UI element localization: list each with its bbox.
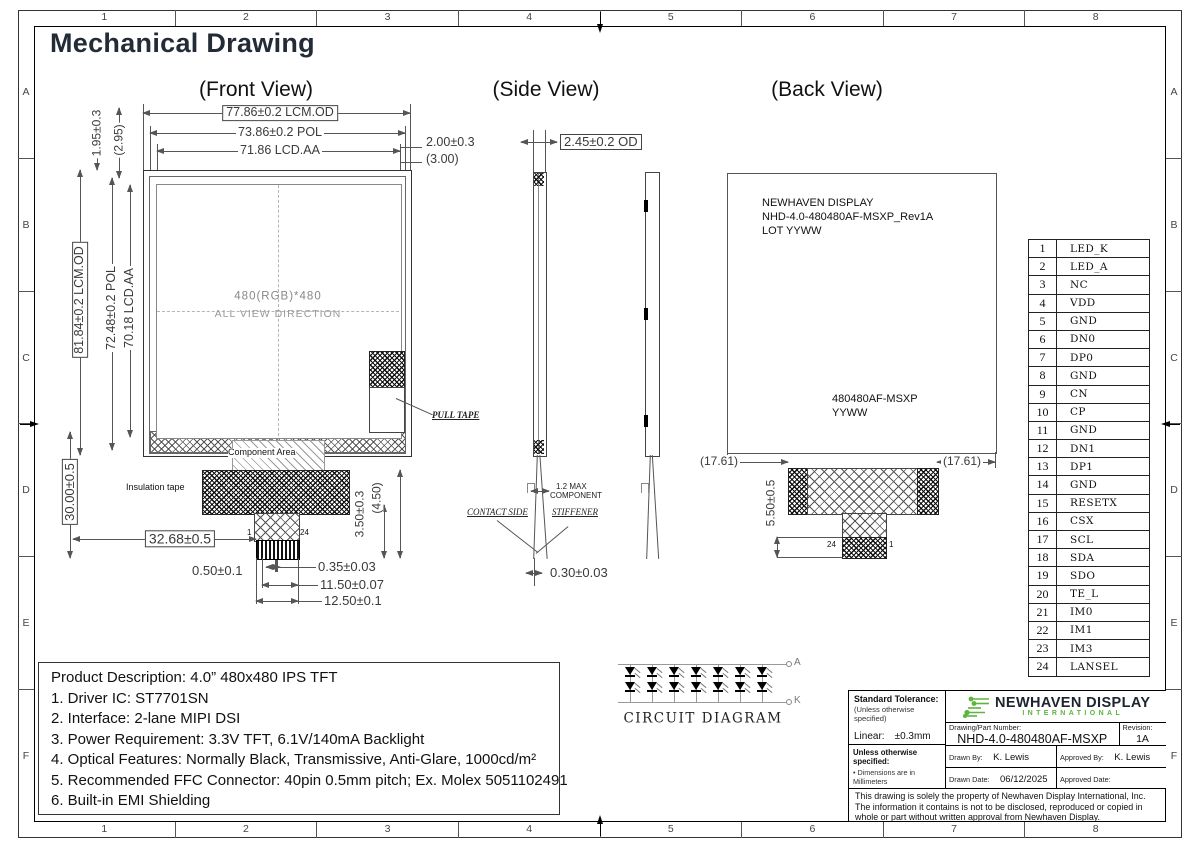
revision-value: 1A <box>1123 733 1163 745</box>
pin-name: LED_K <box>1057 240 1108 257</box>
description-line: Product Description: 4.0” 480x480 IPS TF… <box>51 668 559 689</box>
pin-name: SCL <box>1057 531 1093 548</box>
dim-line-pins-span <box>262 585 298 586</box>
pin-name: IM3 <box>1057 640 1093 657</box>
pin-name: GND <box>1057 313 1097 330</box>
pin-table-row: 16 CSX <box>1029 513 1149 531</box>
grid-row-label: C <box>1166 291 1182 424</box>
description-line: 5. Recommended FFC Connector: 40pin 0.5m… <box>51 771 559 792</box>
anode-terminal <box>786 661 792 667</box>
back-connector <box>842 537 887 559</box>
grid-col-label: 7 <box>883 822 1025 838</box>
pin-connection-table: 1 LED_K 2 LED_A 3 NC 4 VDD 5 GND <box>1028 239 1150 677</box>
page-title: Mechanical Drawing <box>50 28 315 59</box>
dim-line-tail-1 <box>384 505 385 558</box>
back-tape-right <box>917 468 939 515</box>
pin-name: NC <box>1057 276 1088 293</box>
pin-number: 20 <box>1029 586 1057 603</box>
revision-cell: Revision: 1A <box>1120 723 1166 746</box>
dim-label-aa-width: 71.86 LCD.AA <box>238 144 322 158</box>
pin-name: GND <box>1057 476 1097 493</box>
front-view-label: (Front View) <box>199 78 313 102</box>
pin-number: 13 <box>1029 458 1057 475</box>
insulation-tape-label: Insulation tape <box>126 483 185 493</box>
pin-number: 7 <box>1029 349 1057 366</box>
description-line: 1. Driver IC: ST7701SN <box>51 689 559 710</box>
pin-number: 5 <box>1029 313 1057 330</box>
spec-cell: Unless otherwise specified: • Dimensions… <box>849 745 946 789</box>
led-icon <box>691 667 701 679</box>
dim-label-top-margin-1: 1.95±0.3 <box>90 108 103 159</box>
contact-side-label: CONTACT SIDE <box>467 508 528 518</box>
pin-number: 22 <box>1029 622 1057 639</box>
revision-label: Revision: <box>1123 724 1163 732</box>
leader-line <box>400 162 422 163</box>
pin-table-row: 7 DP0 <box>1029 349 1149 367</box>
grid-col-label: 7 <box>883 10 1025 26</box>
pin-name: CN <box>1057 386 1088 403</box>
led-column <box>754 664 776 702</box>
pin-name: SDA <box>1057 549 1094 566</box>
pin-table-row: 13 DP1 <box>1029 458 1149 476</box>
led-column <box>732 664 754 702</box>
center-arrow-bottom <box>597 815 603 824</box>
side-bottom-hatch <box>534 440 544 454</box>
pin-name: RESETX <box>1057 495 1117 512</box>
pin-table-row: 17 SCL <box>1029 531 1149 549</box>
description-line: 4. Optical Features: Normally Black, Tra… <box>51 750 559 771</box>
led-column <box>688 664 710 702</box>
back-tail-weave <box>807 468 919 515</box>
grid-col-label: 6 <box>741 822 883 838</box>
component-area-label: Component Area <box>228 448 296 458</box>
ext-line <box>545 130 546 172</box>
grid-col-label: 8 <box>1024 10 1166 26</box>
back-pin-1-marker: 1 <box>889 541 893 550</box>
cathode-label: K <box>794 695 801 706</box>
dim-label-back-tail: 5.50±0.5 <box>764 478 777 529</box>
component-mark <box>641 483 649 493</box>
pin-number: 16 <box>1029 513 1057 530</box>
approved-by-label: Approved By: <box>1060 753 1104 762</box>
drawn-date-cell: Drawn Date: 06/12/2025 <box>946 768 1057 790</box>
grid-row-label: A <box>18 26 34 158</box>
side-view-label: (Side View) <box>493 78 600 102</box>
drawn-by-label: Drawn By: <box>949 753 983 762</box>
brand-name: NEWHAVEN DISPLAY <box>995 696 1150 710</box>
pin-table-row: 3 NC <box>1029 276 1149 294</box>
pin-table-row: 24 LANSEL <box>1029 658 1149 675</box>
grid-col-label: 6 <box>741 10 883 26</box>
pull-tape-label: PULL TAPE <box>432 411 479 421</box>
grid-col-label: 2 <box>175 10 317 26</box>
dim-label-tail-1: 3.50±0.3 <box>353 489 366 540</box>
side-profile-inner-line <box>538 173 539 454</box>
tolerance-note: (Unless otherwise specified) <box>854 705 940 723</box>
led-icon <box>735 667 745 679</box>
pin-number: 24 <box>1029 658 1057 675</box>
drawing-sheet: 12345678 12345678 ABCDEF ABCDEF Mechanic… <box>0 0 1200 848</box>
pin-table-row: 4 VDD <box>1029 295 1149 313</box>
back-tail-lower <box>842 513 887 539</box>
center-arrow-top <box>597 24 603 33</box>
led-icon <box>647 682 657 694</box>
title-block: Standard Tolerance: (Unless otherwise sp… <box>848 690 1166 822</box>
grid-row-label: E <box>1166 556 1182 689</box>
side-top-hatch <box>534 173 544 186</box>
pin-table-row: 14 GND <box>1029 476 1149 494</box>
side-tab <box>644 415 648 427</box>
ext-line <box>777 537 842 538</box>
back-marking-line2: NHD-4.0-480480AF-MSXP_Rev1A <box>762 211 933 223</box>
fpc-tail <box>254 513 300 542</box>
back-tape-left <box>788 468 809 515</box>
back-marking-line1: NEWHAVEN DISPLAY <box>762 197 873 209</box>
dim-line-fpc-thickness <box>526 573 542 574</box>
back-marking-line3: LOT YYWW <box>762 225 822 237</box>
pin-name: VDD <box>1057 295 1096 312</box>
approved-by-value: K. Lewis <box>1114 752 1150 763</box>
pin-name: DN0 <box>1057 331 1096 348</box>
dim-label-pol-width: 73.86±0.2 POL <box>236 126 324 140</box>
dim-line-pin-width <box>266 567 280 568</box>
dim-label-fpc-width: 12.50±0.1 <box>324 594 382 608</box>
cathode-terminal <box>786 699 792 705</box>
grid-row-label: B <box>18 158 34 291</box>
stiffener-label: STIFFENER <box>552 508 598 518</box>
led-icon <box>647 667 657 679</box>
pin-number: 19 <box>1029 567 1057 584</box>
pin-number: 23 <box>1029 640 1057 657</box>
led-icon <box>713 682 723 694</box>
pin-number: 11 <box>1029 422 1057 439</box>
ext-line <box>777 557 842 558</box>
brand-subtitle: INTERNATIONAL <box>995 710 1150 718</box>
dim-label-edge-2: (3.00) <box>426 153 459 167</box>
description-line: 2. Interface: 2-lane MIPI DSI <box>51 709 559 730</box>
active-area-view-direction: ALL VIEW DIRECTION <box>215 309 342 321</box>
side-tab <box>644 308 648 320</box>
pin-number: 3 <box>1029 276 1057 293</box>
approved-date-label: Approved Date: <box>1060 775 1111 784</box>
pin-number: 8 <box>1029 367 1057 384</box>
grid-col-label: 5 <box>600 10 742 26</box>
back-pin-24-marker: 24 <box>827 541 836 550</box>
description-line: 3. Power Requirement: 3.3V TFT, 6.1V/140… <box>51 730 559 751</box>
led-icon <box>625 667 635 679</box>
circuit-diagram-label: CIRCUIT DIAGRAM <box>623 712 782 727</box>
center-arrow-right <box>1161 421 1170 427</box>
led-column <box>622 664 644 702</box>
grid-col-label: 5 <box>600 822 742 838</box>
pin-number: 9 <box>1029 386 1057 403</box>
grid-row-label: A <box>1166 26 1182 158</box>
pin-number: 10 <box>1029 404 1057 421</box>
dim-label-pin-width: 0.35±0.03 <box>318 560 376 574</box>
spec-title: Unless otherwise specified: <box>853 748 941 766</box>
pin-table-row: 1 LED_K <box>1029 240 1149 258</box>
pin-number: 6 <box>1029 331 1057 348</box>
side-profile <box>533 172 547 457</box>
drawn-date-label: Drawn Date: <box>949 775 990 784</box>
led-icon <box>757 682 767 694</box>
grid-row-label: B <box>1166 158 1182 291</box>
tolerance-title: Standard Tolerance: <box>854 694 940 704</box>
dim-label-fpc-offset: 32.68±0.5 <box>145 530 215 547</box>
grid-col-label: 2 <box>175 822 317 838</box>
drawn-by-value: K. Lewis <box>993 752 1029 763</box>
pin-name: DN1 <box>1057 440 1096 457</box>
disclaimer-cell: This drawing is solely the property of N… <box>849 789 1165 820</box>
pin-name: IM1 <box>1057 622 1093 639</box>
grid-row-label: E <box>18 556 34 689</box>
component-note-2: COMPONENT <box>550 492 602 501</box>
pin-number: 18 <box>1029 549 1057 566</box>
center-arrow-left <box>30 421 39 427</box>
dim-label-tail-total: 30.00±0.5 <box>62 459 78 525</box>
pin-name: LANSEL <box>1057 658 1118 675</box>
led-icon <box>757 667 767 679</box>
pin-number: 4 <box>1029 295 1057 312</box>
dim-label-edge-1: 2.00±0.3 <box>426 136 475 150</box>
dim-label-lcm-od-height: 81.84±0.2 LCM.OD <box>72 242 88 358</box>
pin-table-row: 23 IM3 <box>1029 640 1149 658</box>
leader-line <box>298 585 318 586</box>
dim-label-top-margin-2: (2.95) <box>112 122 125 157</box>
dim-label-thickness: 2.45±0.2 OD <box>560 134 642 150</box>
dim-line-component-height <box>531 491 549 492</box>
pin-name: GND <box>1057 422 1097 439</box>
pin-name: LED_A <box>1057 258 1108 275</box>
led-column <box>644 664 666 702</box>
dim-line-fpc-width <box>256 601 298 602</box>
pin-table-row: 9 CN <box>1029 386 1149 404</box>
approved-date-cell: Approved Date: 06/12/2025 <box>1057 768 1166 790</box>
dim-label-pol-height: 72.48±0.2 POL <box>105 264 119 352</box>
drawn-by-cell: Drawn By: K. Lewis <box>946 746 1057 768</box>
led-column <box>710 664 732 702</box>
pin-number: 1 <box>1029 240 1057 257</box>
pin-table-row: 8 GND <box>1029 367 1149 385</box>
drawn-date-value: 06/12/2025 <box>1000 774 1048 785</box>
active-area-resolution: 480(RGB)*480 <box>234 291 321 304</box>
dim-label-back-left: (17.61) <box>698 455 740 468</box>
dim-label-aa-height: 70.18 LCD.AA <box>123 266 137 350</box>
back-view-label: (Back View) <box>771 78 883 102</box>
product-description: Product Description: 4.0” 480x480 IPS TF… <box>38 662 560 815</box>
part-number-label: Drawing/Part Number: <box>949 724 1116 732</box>
back-marking2-line1: 480480AF-MSXP <box>832 393 918 405</box>
grid-row-label: D <box>18 423 34 556</box>
grid-col-label: 8 <box>1024 822 1166 838</box>
pull-tape-hatch <box>369 351 405 389</box>
approved-by-cell: Approved By: K. Lewis <box>1057 746 1166 768</box>
led-icon <box>625 682 635 694</box>
back-marking2-line2: YYWW <box>832 407 867 419</box>
dim-label-fpc-thickness: 0.30±0.03 <box>550 566 608 580</box>
anode-label: A <box>794 657 801 668</box>
disclaimer-text: This drawing is solely the property of N… <box>855 791 1159 823</box>
pin-number: 2 <box>1029 258 1057 275</box>
pin-table-row: 5 GND <box>1029 313 1149 331</box>
pin-name: GND <box>1057 367 1097 384</box>
led-icon <box>713 667 723 679</box>
led-icon <box>691 682 701 694</box>
leader-line <box>298 601 322 602</box>
dim-label-lcm-od-width: 77.86±0.2 LCM.OD <box>222 105 338 121</box>
spec-item-units: • Dimensions are in Millimeters <box>853 768 941 786</box>
pin-name: DP1 <box>1057 458 1093 475</box>
leader-line <box>400 147 422 148</box>
dim-line-back-tail <box>777 537 778 557</box>
grid-row-label: D <box>1166 423 1182 556</box>
part-number-value: NHD-4.0-480480AF-MSXP <box>949 732 1116 746</box>
grid-row-label: F <box>1166 689 1182 822</box>
dim-label-pins-span: 11.50±0.07 <box>320 578 384 592</box>
grid-col-label: 4 <box>458 10 600 26</box>
brand-cell: NEWHAVEN DISPLAY INTERNATIONAL <box>946 691 1166 723</box>
pin-table-row: 22 IM1 <box>1029 622 1149 640</box>
pin-number: 15 <box>1029 495 1057 512</box>
cathode-rail <box>618 702 788 703</box>
pin-name: IM0 <box>1057 604 1093 621</box>
dim-label-back-right: (17.61) <box>941 455 983 468</box>
pin-table-row: 12 DN1 <box>1029 440 1149 458</box>
grid-col-label: 3 <box>316 822 458 838</box>
pin-number: 14 <box>1029 476 1057 493</box>
tolerance-linear-label: Linear: <box>854 731 885 742</box>
tolerance-cell: Standard Tolerance: (Unless otherwise sp… <box>849 691 946 745</box>
pin-number: 12 <box>1029 440 1057 457</box>
part-number-cell: Drawing/Part Number: NHD-4.0-480480AF-MS… <box>946 723 1120 746</box>
pin-table-row: 21 IM0 <box>1029 604 1149 622</box>
pull-tape-body <box>369 387 405 433</box>
pin-table-row: 20 TE_L <box>1029 586 1149 604</box>
pin-table-row: 18 SDA <box>1029 549 1149 567</box>
pin-name: TE_L <box>1057 586 1099 603</box>
led-icon <box>735 682 745 694</box>
pin-name: CSX <box>1057 513 1094 530</box>
grid-col-label: 4 <box>458 822 600 838</box>
pin-name: DP0 <box>1057 349 1093 366</box>
grid-row-label: C <box>18 291 34 424</box>
pin-table-row: 11 GND <box>1029 422 1149 440</box>
fpc-connector-pins <box>256 540 300 560</box>
grid-col-label: 1 <box>34 822 175 838</box>
pin-number: 21 <box>1029 604 1057 621</box>
grid-col-label: 1 <box>34 10 175 26</box>
grid-row-label: F <box>18 689 34 822</box>
pin-table-row: 6 DN0 <box>1029 331 1149 349</box>
pin-name: CP <box>1057 404 1086 421</box>
pin-table-row: 10 CP <box>1029 404 1149 422</box>
grid-col-label: 3 <box>316 10 458 26</box>
description-line: 6. Built-in EMI Shielding <box>51 791 559 812</box>
side-tab <box>644 200 648 212</box>
newhaven-logo-icon <box>961 695 989 719</box>
leader-line <box>280 567 316 568</box>
tolerance-linear-value: ±0.3mm <box>895 731 931 742</box>
pin-24-marker: 24 <box>300 529 309 538</box>
led-column <box>666 664 688 702</box>
pin-name: SDO <box>1057 567 1095 584</box>
insulation-tape <box>202 470 350 515</box>
dim-line-tail-2 <box>400 470 401 558</box>
dim-line-thickness <box>521 142 557 143</box>
pin-number: 17 <box>1029 531 1057 548</box>
led-icon <box>669 682 679 694</box>
dim-label-tail-2: (4.50) <box>370 480 383 515</box>
pin-table-row: 15 RESETX <box>1029 495 1149 513</box>
pin-table-row: 19 SDO <box>1029 567 1149 585</box>
led-icon <box>669 667 679 679</box>
dim-label-pin-pitch: 0.50±0.1 <box>192 564 243 578</box>
ext-line <box>533 130 534 172</box>
pin-table-row: 2 LED_A <box>1029 258 1149 276</box>
